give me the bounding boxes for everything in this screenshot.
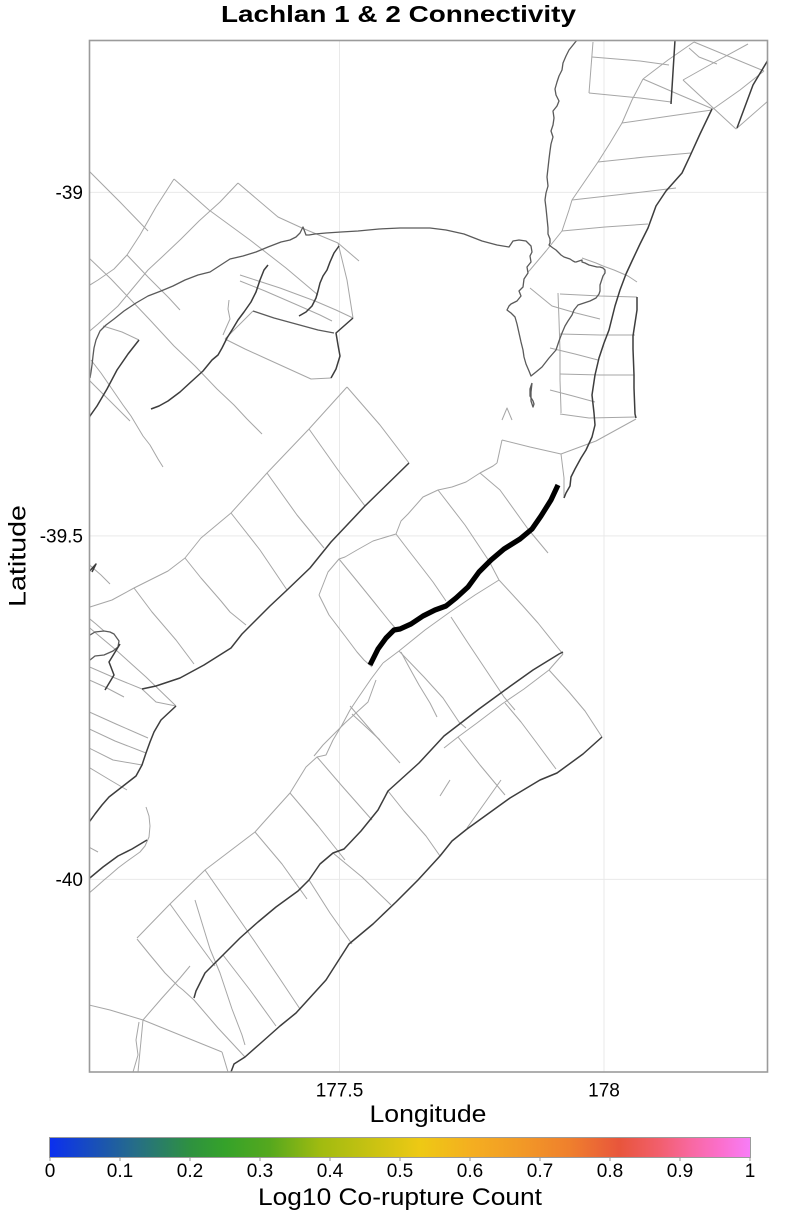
svg-text:0.9: 0.9: [667, 1161, 693, 1182]
svg-text:Longitude: Longitude: [370, 1101, 487, 1128]
svg-text:0.3: 0.3: [247, 1161, 273, 1182]
svg-text:1: 1: [745, 1161, 756, 1182]
svg-text:0: 0: [45, 1161, 56, 1182]
svg-text:-39: -39: [56, 183, 83, 204]
svg-text:0.2: 0.2: [177, 1161, 203, 1182]
svg-text:0.4: 0.4: [317, 1161, 344, 1182]
svg-text:Lachlan 1 & 2 Connectivity: Lachlan 1 & 2 Connectivity: [221, 1, 576, 27]
svg-text:Log10 Co-rupture Count: Log10 Co-rupture Count: [258, 1184, 542, 1211]
svg-text:0.7: 0.7: [527, 1161, 553, 1182]
svg-text:178: 178: [588, 1081, 620, 1102]
svg-text:0.5: 0.5: [387, 1161, 413, 1182]
svg-text:-39.5: -39.5: [40, 527, 83, 548]
svg-text:0.1: 0.1: [107, 1161, 133, 1182]
svg-text:177.5: 177.5: [316, 1081, 364, 1102]
svg-text:0.8: 0.8: [597, 1161, 623, 1182]
svg-text:0.6: 0.6: [457, 1161, 483, 1182]
svg-text:Latitude: Latitude: [5, 505, 32, 607]
svg-text:-40: -40: [56, 870, 83, 891]
